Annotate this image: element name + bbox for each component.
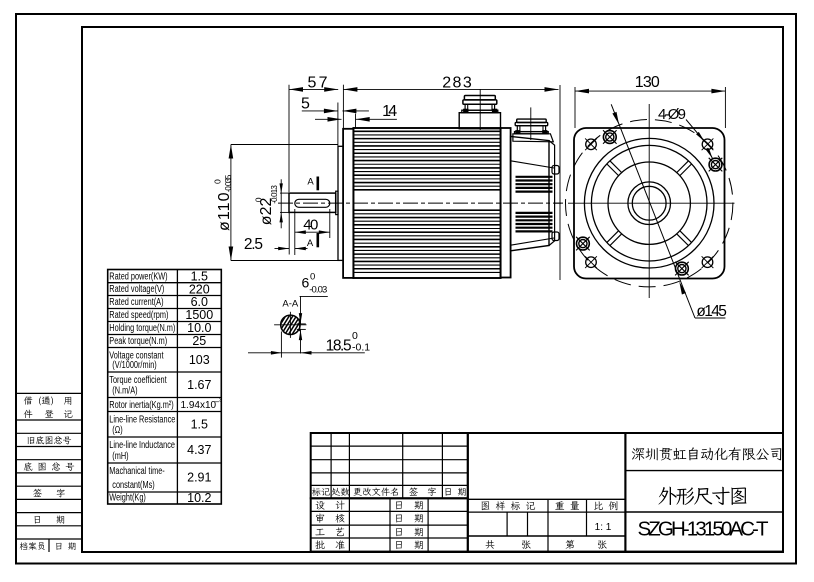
svg-text:10.2: 10.2: [187, 491, 211, 505]
svg-text:1.94x10: 1.94x10: [181, 400, 217, 411]
svg-text:283: 283: [442, 75, 472, 92]
svg-text:0: 0: [310, 272, 315, 283]
svg-text:(Ω): (Ω): [112, 424, 122, 435]
svg-text:ø110: ø110: [216, 192, 233, 231]
svg-text:0: 0: [212, 179, 222, 184]
svg-text:-0.1: -0.1: [352, 341, 370, 353]
svg-text:1.5: 1.5: [191, 269, 208, 283]
svg-text:-0.013: -0.013: [270, 185, 279, 204]
svg-text:(N.m/A): (N.m/A): [112, 384, 137, 395]
svg-text:1.67: 1.67: [187, 378, 211, 392]
svg-text:ø145: ø145: [696, 303, 726, 320]
svg-text:2.5: 2.5: [244, 236, 263, 253]
svg-text:10.0: 10.0: [187, 321, 211, 335]
svg-text:103: 103: [189, 353, 210, 367]
svg-text:Rated current(A): Rated current(A): [109, 296, 163, 307]
svg-text:Line-line Inductance: Line-line Inductance: [109, 439, 175, 450]
svg-text:(mH): (mH): [112, 450, 128, 461]
svg-text:130: 130: [635, 74, 660, 91]
svg-text:40: 40: [303, 217, 318, 234]
svg-text:A-A: A-A: [282, 298, 299, 309]
svg-text:4-Ø9: 4-Ø9: [658, 106, 686, 123]
svg-text:14: 14: [382, 103, 397, 120]
svg-text:18.5: 18.5: [326, 337, 351, 354]
svg-text:4.37: 4.37: [187, 443, 211, 457]
svg-text:–³: –³: [214, 396, 222, 406]
svg-text:Rotor inertia(Kg.m²): Rotor inertia(Kg.m²): [109, 399, 173, 410]
svg-text:-0.035: -0.035: [224, 174, 233, 192]
svg-text:Peak torque(N.m): Peak torque(N.m): [109, 335, 167, 346]
svg-text:constant(Ms): constant(Ms): [112, 479, 154, 490]
svg-text:1: 1: 1: 1: [595, 522, 612, 533]
svg-text:Rated speed(rpm): Rated speed(rpm): [109, 309, 168, 320]
svg-text:1.5: 1.5: [191, 417, 208, 431]
svg-text:Rated power(KW): Rated power(KW): [109, 270, 167, 281]
svg-text:220: 220: [189, 282, 210, 296]
svg-text:1500: 1500: [185, 308, 213, 322]
svg-text:A: A: [307, 177, 314, 188]
svg-text:SZGH-13150AC-T: SZGH-13150AC-T: [638, 518, 769, 541]
svg-text:5: 5: [301, 95, 310, 112]
svg-text:Weight(Kg): Weight(Kg): [109, 491, 146, 502]
svg-text:25: 25: [192, 334, 206, 348]
svg-text:(V/1000r/min): (V/1000r/min): [112, 359, 156, 370]
svg-text:6: 6: [302, 275, 310, 291]
svg-text:0: 0: [352, 330, 358, 342]
svg-text:Holding torque(N.m): Holding torque(N.m): [109, 322, 175, 333]
svg-text:0: 0: [254, 197, 264, 202]
svg-text:6.0: 6.0: [191, 295, 208, 309]
svg-text:A: A: [307, 238, 314, 249]
svg-text:Rated voltage(V): Rated voltage(V): [109, 283, 164, 294]
svg-text:2.91: 2.91: [187, 471, 211, 485]
svg-text:-0.03: -0.03: [309, 285, 327, 296]
svg-text:Machanical time-: Machanical time-: [109, 465, 164, 476]
